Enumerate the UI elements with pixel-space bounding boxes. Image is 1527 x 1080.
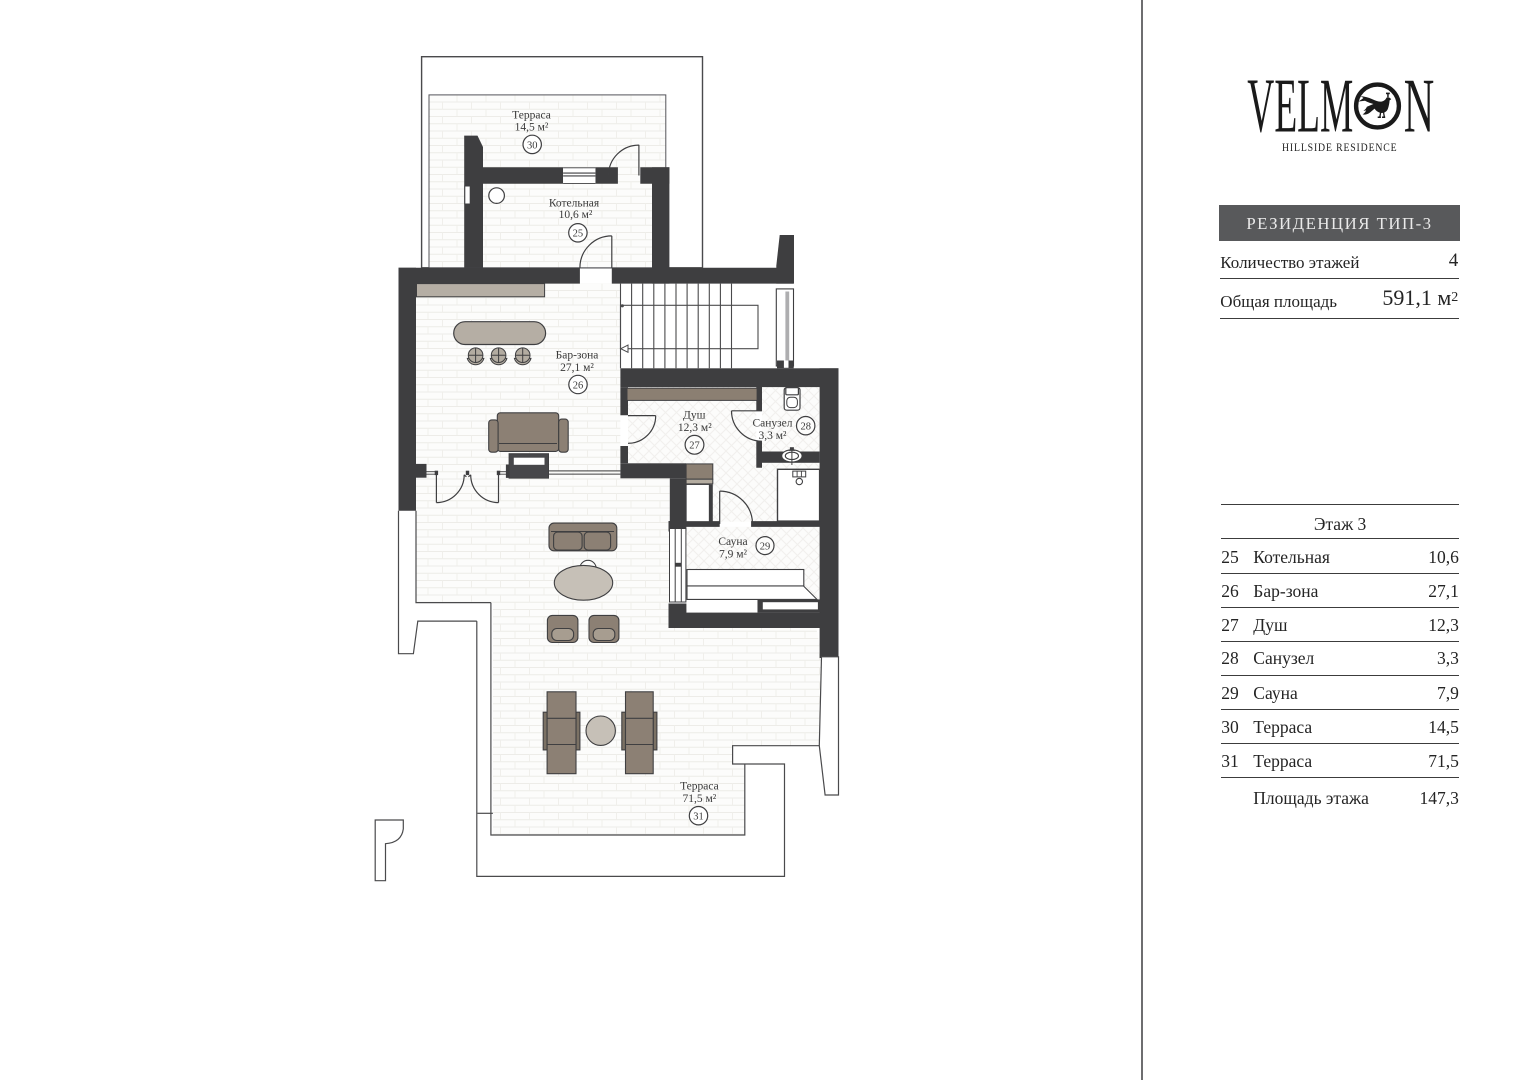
svg-text:28: 28 <box>800 422 811 433</box>
svg-text:7,9 м²: 7,9 м² <box>719 548 748 560</box>
svg-text:25: 25 <box>573 229 584 240</box>
svg-text:31: 31 <box>693 812 704 823</box>
svg-text:27,1 м²: 27,1 м² <box>560 362 594 374</box>
svg-text:26: 26 <box>573 380 584 391</box>
svg-text:HILLSIDE RESIDENCE: HILLSIDE RESIDENCE <box>1282 142 1398 154</box>
svg-text:12,3 м²: 12,3 м² <box>678 422 712 434</box>
svg-text:Санузел: Санузел <box>752 418 792 430</box>
svg-text:Душ: Душ <box>683 410 706 422</box>
svg-text:Терраса: Терраса <box>680 780 719 792</box>
svg-text:10,6 м²: 10,6 м² <box>559 209 593 221</box>
svg-text:Котельная: Котельная <box>549 198 600 210</box>
svg-text:27: 27 <box>689 441 700 452</box>
svg-text:29: 29 <box>760 542 771 553</box>
svg-text:Бар-зона: Бар-зона <box>556 349 599 361</box>
svg-text:30: 30 <box>527 140 538 151</box>
svg-text:Терраса: Терраса <box>512 109 551 121</box>
svg-text:14,5 м²: 14,5 м² <box>515 121 549 133</box>
svg-text:VELM: VELM <box>1247 63 1353 149</box>
svg-text:3,3 м²: 3,3 м² <box>759 430 788 442</box>
svg-text:N: N <box>1404 63 1435 149</box>
svg-text:71,5 м²: 71,5 м² <box>683 793 717 805</box>
svg-text:Сауна: Сауна <box>718 536 747 548</box>
